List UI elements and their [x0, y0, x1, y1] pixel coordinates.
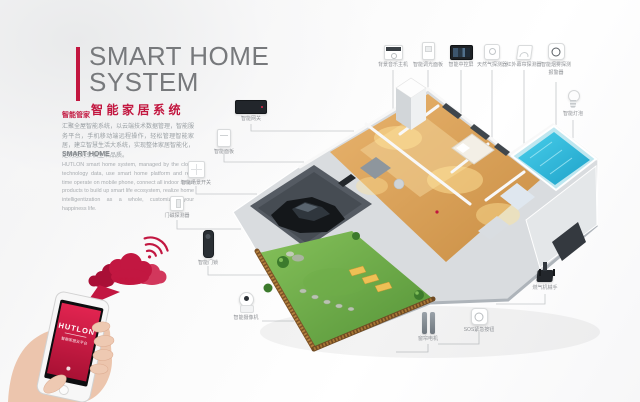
device-sos-button: SOS紧急按钮	[456, 308, 502, 333]
device-smoke-detector: 智能烟雾探测 报警器	[533, 43, 579, 76]
device-label: 燃气机械手	[532, 285, 557, 291]
device-camera: 智能摄像机	[223, 292, 269, 321]
scene-switch-icon	[188, 161, 205, 178]
device-label: 窗帘电机	[418, 336, 438, 342]
device-label: 背景音乐主机	[378, 62, 408, 68]
camera-icon	[237, 292, 255, 313]
wifi-signal-icon	[137, 234, 170, 265]
door-lock-icon	[203, 230, 214, 258]
device-label: 门磁探测器	[164, 213, 189, 219]
wall-panel-icon	[217, 129, 231, 147]
device-label: SOS紧急按钮	[464, 327, 495, 333]
device-label: 智能摄像机	[233, 315, 258, 321]
curtain-motor-icon	[421, 312, 436, 334]
gateway-icon	[235, 100, 267, 114]
device-label: 智能灯泡	[563, 111, 583, 117]
device-wall-panel: 智能面板	[201, 129, 247, 155]
device-door-sensor: 门磁探测器	[154, 196, 200, 219]
device-curtain-motor: 窗帘电机	[405, 312, 451, 342]
sos-button-icon	[471, 308, 488, 325]
device-label: 智能网关	[241, 116, 261, 122]
device-bulb: 智能灯泡	[550, 90, 596, 117]
device-gateway: 智能网关	[228, 100, 274, 122]
title-line1: SMART HOME	[89, 44, 269, 70]
pir-detector-icon	[515, 45, 532, 60]
device-door-lock: 智能门锁	[185, 230, 231, 266]
title-line2: SYSTEM	[89, 70, 269, 96]
device-label-line2: 报警器	[548, 70, 563, 76]
page-title: SMART HOME SYSTEM	[89, 44, 269, 95]
cloud-label: 云端数据库	[104, 277, 150, 284]
intro-english-heading: SMART HOME	[62, 151, 194, 158]
gas-valve-icon	[535, 261, 555, 283]
device-gas-valve: 燃气机械手	[522, 261, 568, 291]
gas-detector-icon	[484, 44, 500, 60]
music-host-icon	[384, 45, 403, 60]
device-scene-switch: 智能场景开关	[173, 161, 219, 186]
device-label: 智能场景开关	[181, 180, 211, 186]
door-sensor-icon	[170, 196, 184, 211]
intro-chinese-heading: 智能管家	[62, 110, 194, 120]
cloud-icon	[83, 234, 170, 308]
smoke-detector-icon	[548, 43, 565, 60]
dimmer-panel-icon	[422, 42, 435, 60]
device-label: 智能门锁	[198, 260, 218, 266]
device-label: 智能面板	[214, 149, 234, 155]
hand-with-phone: HUTLON 智能家居云平台	[8, 291, 114, 402]
device-label: 智能烟雾探测	[541, 62, 571, 68]
poster-canvas: HUTLON 智能家居云平台 SMART HOME SYSTEM 智能家居系统	[0, 0, 640, 402]
bulb-icon	[567, 90, 580, 109]
title-accent-bar	[76, 47, 80, 101]
